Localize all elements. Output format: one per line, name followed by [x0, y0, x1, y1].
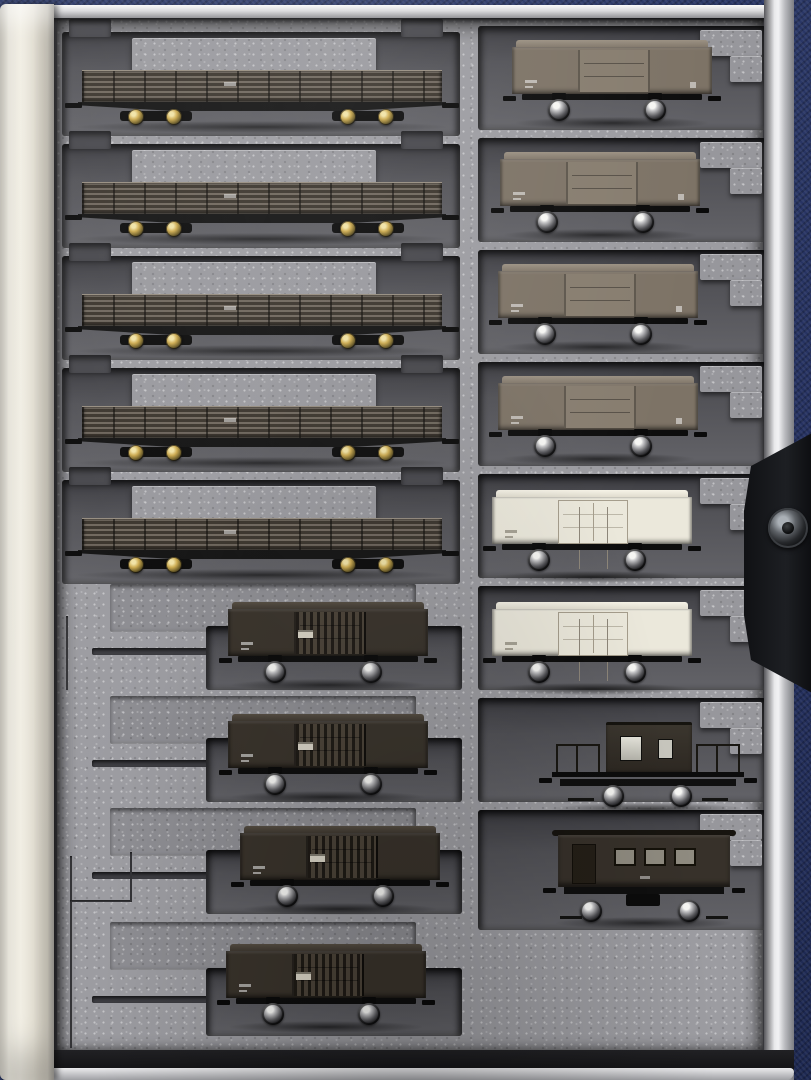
coupler [688, 658, 701, 663]
window [658, 739, 673, 759]
number-plate [298, 742, 313, 750]
bogie [120, 556, 192, 574]
car-lettering [678, 194, 684, 200]
coupler [732, 888, 745, 893]
wheel [340, 557, 356, 573]
underframe [560, 779, 736, 786]
wheel [360, 773, 382, 795]
case-top-edge [34, 5, 790, 18]
sliding-door [578, 50, 650, 92]
gondola-slatted-side [82, 182, 442, 215]
foam-step [730, 168, 762, 194]
footstep [706, 916, 728, 919]
wheel [262, 1003, 284, 1025]
finger-notch [401, 19, 443, 37]
wheel [536, 211, 558, 233]
car-lettering [239, 984, 251, 987]
wheel [128, 109, 144, 125]
wheel [624, 549, 646, 571]
end-door-panel [572, 844, 596, 884]
car-lettering [676, 306, 682, 312]
wheel [630, 435, 652, 457]
coupler [65, 551, 82, 556]
freight-car-open-gondola [74, 182, 450, 242]
freight-car-boxcar-brown [500, 152, 700, 238]
car-lettering [525, 80, 537, 83]
car-lettering [241, 648, 249, 650]
car-lettering [511, 304, 523, 307]
foam-step [730, 280, 762, 306]
underframe [510, 206, 690, 212]
wheel [678, 900, 700, 922]
underframe [522, 94, 702, 100]
case-bottom-edge [36, 1068, 794, 1080]
coupler [65, 215, 82, 220]
finger-notch [69, 131, 111, 149]
car-lettering [511, 422, 519, 424]
platform-railing [696, 744, 740, 774]
wheel [378, 445, 394, 461]
wheel [264, 661, 286, 683]
freight-car-boxcar-brown [498, 376, 698, 462]
coupler [543, 888, 556, 893]
platform-railing [556, 744, 600, 774]
finger-notch [69, 355, 111, 373]
foam-trench-cut [92, 760, 214, 767]
underframe [236, 998, 416, 1004]
underframe [250, 880, 430, 886]
wheel [264, 773, 286, 795]
car-lettering [676, 418, 682, 424]
coupler [744, 778, 757, 783]
coupler [489, 320, 502, 325]
car-lettering [690, 82, 696, 88]
wheel [580, 900, 602, 922]
coupler [65, 439, 82, 444]
wheel [630, 323, 652, 345]
gondola-slatted-side [82, 406, 442, 439]
wheel [166, 333, 182, 349]
wheel [528, 549, 550, 571]
car-lettering [239, 990, 247, 992]
snap-fastener-center [782, 522, 794, 534]
car-lettering [224, 530, 236, 534]
wheel [358, 1003, 380, 1025]
foam-slit-line [70, 856, 72, 1048]
coupler [424, 770, 437, 775]
coupler [424, 658, 437, 663]
window [614, 848, 636, 866]
car-lettering [513, 192, 525, 195]
coupler [65, 103, 82, 108]
coupler [442, 551, 459, 556]
platform-deck [552, 772, 744, 777]
car-lettering [241, 642, 253, 645]
gondola-slatted-side [82, 70, 442, 103]
coupler [219, 658, 232, 663]
wheel [166, 445, 182, 461]
coupler [688, 546, 701, 551]
car-lettering [511, 416, 523, 419]
bogie [332, 556, 404, 574]
wheel [128, 445, 144, 461]
wheel [548, 99, 570, 121]
foam-trench-cut [92, 996, 214, 1003]
foam-trench-cut [92, 648, 214, 655]
freight-car-reefer-white [492, 490, 692, 580]
wheel [166, 557, 182, 573]
wheel [534, 435, 556, 457]
car-lettering [253, 872, 261, 874]
underframe [508, 430, 688, 436]
wheel [378, 333, 394, 349]
foam-slit-line [130, 852, 132, 902]
foam-slit-line [70, 900, 132, 902]
coupler [483, 658, 496, 663]
car-lettering [224, 194, 236, 198]
car-lettering [253, 866, 265, 869]
wheel [378, 557, 394, 573]
number-plate [298, 630, 313, 638]
freight-car-boxcar-brown [512, 40, 712, 126]
double-door [558, 500, 628, 544]
number-plate [296, 972, 311, 980]
case-spine [0, 4, 54, 1080]
coupler [442, 439, 459, 444]
bogie [120, 444, 192, 462]
underframe [502, 544, 682, 550]
coupler [708, 96, 721, 101]
number-plate [310, 854, 325, 862]
foam-step [700, 254, 762, 280]
coupler [231, 882, 244, 887]
car-lettering [224, 306, 236, 310]
window [674, 848, 696, 866]
freight-car-open-gondola [74, 518, 450, 578]
finger-notch [69, 19, 111, 37]
car-lettering [224, 418, 236, 422]
coupler [503, 96, 516, 101]
car-lettering [640, 876, 650, 879]
foam-slit-line [66, 616, 68, 690]
coupler [219, 770, 232, 775]
car-lettering [505, 530, 517, 533]
wheel [534, 323, 556, 345]
wheel [166, 109, 182, 125]
gondola-slatted-side [82, 518, 442, 551]
coupler [696, 208, 709, 213]
car-lettering [505, 648, 513, 650]
footstep [568, 798, 594, 801]
sliding-door [564, 274, 636, 316]
brake-van-cabin [606, 722, 692, 775]
freight-car-reefer-white [492, 602, 692, 692]
wheel [624, 661, 646, 683]
bogie [332, 444, 404, 462]
freight-car-boxcar-black [228, 602, 428, 688]
wheel [166, 221, 182, 237]
car-lettering [224, 82, 236, 86]
bogie [332, 332, 404, 350]
snap-fastener [768, 508, 808, 548]
footstep [702, 798, 728, 801]
coupler [694, 320, 707, 325]
coupler [489, 432, 502, 437]
finger-notch [69, 467, 111, 485]
coupler [442, 327, 459, 332]
bogie [120, 108, 192, 126]
sliding-door [564, 386, 636, 428]
window [644, 848, 666, 866]
bogie [332, 220, 404, 238]
wheel [340, 445, 356, 461]
foam-step [700, 366, 762, 392]
wheel [644, 99, 666, 121]
double-door [558, 612, 628, 656]
wheel [128, 557, 144, 573]
coupler [694, 432, 707, 437]
window [620, 736, 642, 761]
foam-trench-cut [92, 872, 214, 879]
coupler [442, 215, 459, 220]
wheel [360, 661, 382, 683]
freight-car-caboose [552, 830, 736, 926]
foam-step [730, 56, 762, 82]
finger-notch [401, 467, 443, 485]
wheel [340, 221, 356, 237]
case-snap-strap [744, 432, 811, 694]
coupler [442, 103, 459, 108]
freight-car-boxcar-brown [498, 264, 698, 350]
wheel [128, 221, 144, 237]
footstep [560, 916, 582, 919]
gondola-slatted-side [82, 294, 442, 327]
freight-car-brake-van [548, 718, 748, 812]
wheel [128, 333, 144, 349]
underframe-box [626, 894, 660, 906]
coupler [217, 1000, 230, 1005]
underframe [508, 318, 688, 324]
car-lettering [505, 642, 517, 645]
coupler [436, 882, 449, 887]
coupler [491, 208, 504, 213]
car-lettering [511, 310, 519, 312]
underframe [502, 656, 682, 662]
foam-step [700, 142, 762, 168]
finger-notch [401, 355, 443, 373]
sliding-door [566, 162, 638, 204]
wheel [632, 211, 654, 233]
freight-car-open-gondola [74, 406, 450, 466]
car-lettering [505, 536, 513, 538]
bogie [332, 108, 404, 126]
coupler [539, 778, 552, 783]
wheel [378, 109, 394, 125]
freight-car-boxcar-black [226, 944, 426, 1030]
coupler [483, 546, 496, 551]
underframe [564, 887, 724, 894]
wheel [372, 885, 394, 907]
photo-train-case: Photograph looking straight down at an o… [0, 0, 811, 1080]
coupler [65, 327, 82, 332]
wheel [602, 785, 624, 807]
finger-notch [401, 243, 443, 261]
finger-notch [401, 131, 443, 149]
wheel [340, 333, 356, 349]
freight-car-boxcar-black [228, 714, 428, 800]
car-lettering [525, 86, 533, 88]
wheel [528, 661, 550, 683]
freight-car-boxcar-black [240, 826, 440, 912]
bogie [120, 220, 192, 238]
wheel [670, 785, 692, 807]
foam-step [730, 392, 762, 418]
freight-car-open-gondola [74, 70, 450, 130]
wheel [378, 221, 394, 237]
car-lettering [241, 760, 249, 762]
underframe [238, 656, 418, 662]
wheel [340, 109, 356, 125]
coupler [422, 1000, 435, 1005]
car-lettering [241, 754, 253, 757]
finger-notch [69, 243, 111, 261]
freight-car-open-gondola [74, 294, 450, 354]
car-lettering [513, 198, 521, 200]
underframe [238, 768, 418, 774]
bogie [120, 332, 192, 350]
wheel [276, 885, 298, 907]
